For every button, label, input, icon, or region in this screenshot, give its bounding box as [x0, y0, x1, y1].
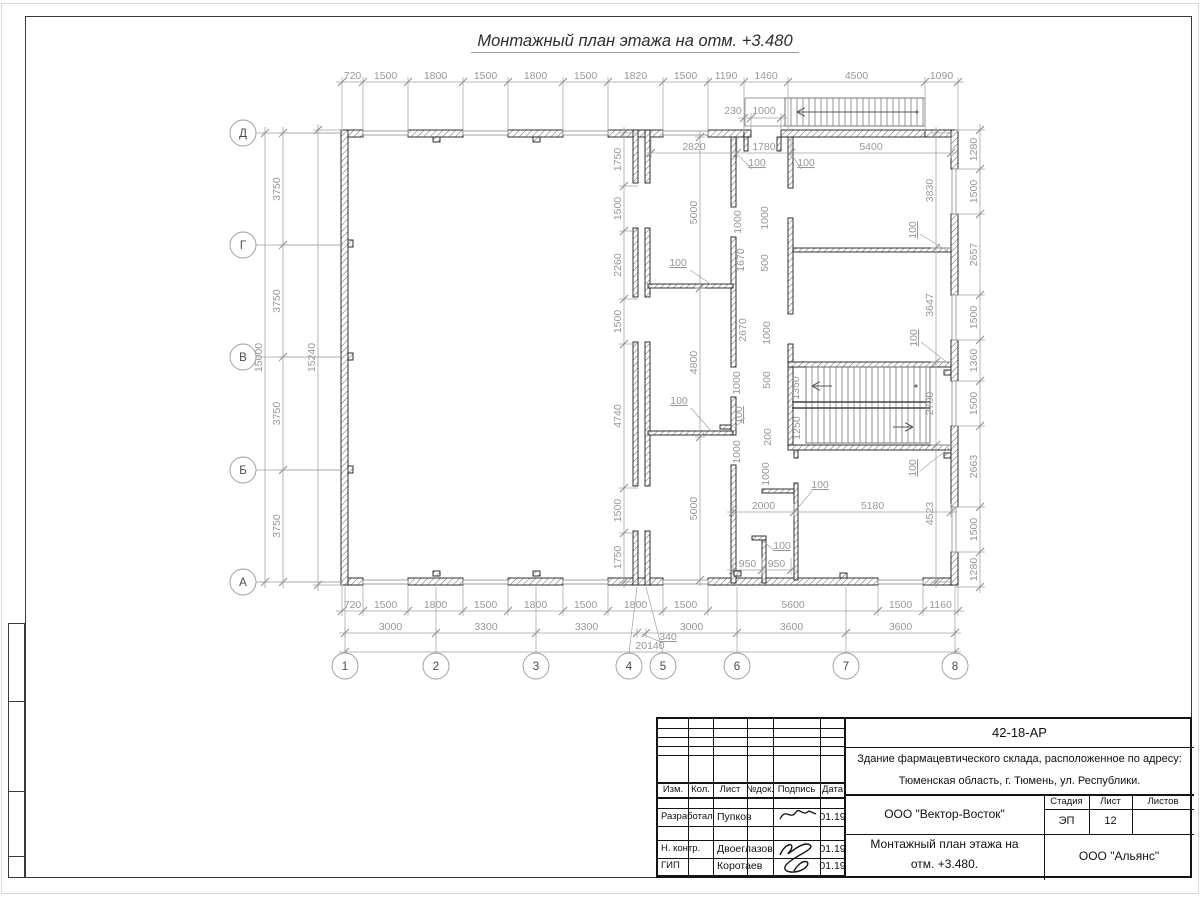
svg-text:3750: 3750	[271, 514, 283, 538]
svg-text:230: 230	[724, 105, 742, 117]
stage-value: ЭП	[1044, 809, 1089, 834]
svg-text:1500: 1500	[674, 599, 698, 611]
svg-text:1500: 1500	[374, 70, 398, 82]
svg-text:1800: 1800	[524, 70, 548, 82]
row-developer-date: 01.19	[820, 808, 845, 826]
svg-text:1500: 1500	[474, 70, 498, 82]
svg-text:3000: 3000	[379, 621, 403, 633]
svg-text:1000: 1000	[761, 321, 773, 345]
svg-text:1500: 1500	[612, 197, 624, 221]
svg-text:100: 100	[670, 395, 688, 407]
row-gip-date: 01.19	[820, 858, 845, 875]
svg-text:3750: 3750	[271, 402, 283, 426]
svg-text:1000: 1000	[731, 440, 743, 464]
col-kol: Кол.	[688, 783, 713, 797]
col-podpis: Подпись	[773, 783, 820, 797]
svg-text:1280: 1280	[968, 138, 980, 162]
row-developer-name: Пупков	[714, 808, 775, 826]
svg-text:Б: Б	[239, 465, 247, 477]
svg-text:1000: 1000	[731, 371, 743, 395]
svg-text:В: В	[239, 352, 247, 364]
svg-text:1000: 1000	[752, 105, 776, 117]
svg-text:3647: 3647	[924, 293, 936, 317]
svg-text:3600: 3600	[889, 621, 913, 633]
svg-text:1500: 1500	[889, 599, 913, 611]
svg-text:1360: 1360	[968, 349, 980, 373]
svg-text:1820: 1820	[624, 70, 648, 82]
svg-text:7: 7	[843, 661, 849, 673]
drawing-sheet: Монтажный план этажа на отм. +3.480 7201…	[0, 0, 1200, 900]
doc-number: 42-18-АР	[845, 719, 1194, 747]
svg-text:3: 3	[533, 661, 539, 673]
svg-text:100: 100	[907, 459, 919, 477]
svg-text:1000: 1000	[759, 206, 771, 230]
sheets-label: Листов	[1132, 795, 1194, 809]
svg-text:500: 500	[761, 371, 773, 389]
object-address-1: Здание фармацевтического склада, располо…	[848, 747, 1191, 771]
svg-text:1500: 1500	[968, 392, 980, 416]
svg-text:Д: Д	[239, 128, 247, 140]
svg-text:5: 5	[660, 661, 666, 673]
svg-text:А: А	[239, 577, 247, 589]
svg-text:8: 8	[952, 661, 958, 673]
svg-text:720: 720	[344, 599, 362, 611]
svg-text:1500: 1500	[474, 599, 498, 611]
svg-text:2000: 2000	[752, 500, 776, 512]
svg-text:100: 100	[908, 329, 920, 347]
svg-text:3750: 3750	[271, 289, 283, 313]
row-developer-role: Разработал	[658, 808, 716, 826]
svg-text:1000: 1000	[760, 462, 772, 486]
col-izm: Изм.	[658, 783, 688, 797]
sheet-label: Лист	[1089, 795, 1132, 809]
svg-text:1500: 1500	[374, 599, 398, 611]
svg-text:1500: 1500	[968, 306, 980, 330]
svg-text:3000: 3000	[680, 621, 704, 633]
customer-org: ООО "Альянс"	[1044, 834, 1194, 880]
svg-text:4740: 4740	[612, 404, 624, 428]
svg-text:1780: 1780	[752, 141, 776, 153]
row-gip-role: ГИП	[658, 858, 716, 875]
svg-text:2657: 2657	[968, 243, 980, 267]
svg-text:5600: 5600	[781, 599, 805, 611]
svg-text:200: 200	[762, 428, 774, 446]
row-ncontrol-name: Двоеглазов	[714, 840, 775, 858]
signature-developer	[776, 805, 820, 825]
svg-text:1500: 1500	[612, 310, 624, 334]
svg-text:5000: 5000	[688, 497, 700, 521]
svg-text:4800: 4800	[688, 351, 700, 375]
col-list: Лист	[713, 783, 747, 797]
svg-text:2260: 2260	[612, 253, 624, 277]
svg-text:1800: 1800	[424, 70, 448, 82]
designer-org: ООО "Вектор-Восток"	[845, 796, 1044, 834]
svg-text:1750: 1750	[612, 148, 624, 172]
stage-label: Стадия	[1044, 795, 1089, 809]
title-block: Изм. Кол. Лист №док. Подпись Дата Разраб…	[656, 717, 1192, 878]
stairs-layer	[785, 98, 930, 443]
svg-text:1500: 1500	[968, 518, 980, 542]
sheet-name-2: отм. +3.480.	[845, 855, 1044, 875]
svg-text:100: 100	[773, 540, 791, 552]
svg-text:3830: 3830	[924, 179, 936, 203]
svg-text:1190: 1190	[715, 70, 738, 82]
svg-text:720: 720	[344, 70, 362, 82]
svg-text:500: 500	[759, 254, 771, 272]
svg-text:3600: 3600	[780, 621, 804, 633]
svg-text:2700: 2700	[924, 392, 936, 416]
svg-text:340: 340	[659, 631, 677, 643]
svg-text:6: 6	[734, 661, 740, 673]
svg-text:1800: 1800	[424, 599, 448, 611]
svg-text:Г: Г	[240, 240, 247, 252]
svg-text:1090: 1090	[930, 70, 954, 82]
svg-text:100: 100	[811, 479, 829, 491]
object-address-2: Тюменская область, г. Тюмень, ул. Респуб…	[848, 769, 1191, 793]
svg-text:950: 950	[739, 558, 757, 570]
svg-text:1500: 1500	[968, 180, 980, 204]
svg-text:2820: 2820	[682, 141, 706, 153]
svg-text:1460: 1460	[754, 70, 778, 82]
walls-layer	[341, 130, 958, 585]
svg-text:2663: 2663	[968, 455, 980, 479]
svg-text:1000: 1000	[732, 210, 744, 234]
svg-text:2670: 2670	[737, 318, 749, 342]
svg-text:1500: 1500	[674, 70, 698, 82]
svg-text:4500: 4500	[845, 70, 869, 82]
svg-text:5000: 5000	[688, 201, 700, 225]
svg-text:1750: 1750	[612, 546, 624, 570]
svg-text:1280: 1280	[968, 558, 980, 582]
svg-text:1800: 1800	[524, 599, 548, 611]
svg-text:3300: 3300	[575, 621, 599, 633]
col-data: Дата	[820, 783, 845, 797]
svg-text:1: 1	[342, 661, 348, 673]
row-ncontrol-date: 01.19	[820, 840, 845, 858]
svg-text:15240: 15240	[306, 343, 318, 372]
svg-text:1670: 1670	[735, 248, 747, 272]
signature-gip	[772, 837, 822, 879]
svg-text:1500: 1500	[574, 70, 598, 82]
svg-text:2: 2	[433, 661, 439, 673]
svg-text:5180: 5180	[861, 500, 885, 512]
svg-text:100: 100	[748, 157, 766, 169]
svg-text:100: 100	[733, 406, 745, 424]
sheet-name-1: Монтажный план этажа на	[845, 835, 1044, 855]
row-ncontrol-role: Н. контр.	[658, 840, 716, 858]
sheet-number: 12	[1089, 809, 1132, 834]
svg-text:1250: 1250	[791, 416, 803, 440]
svg-text:1160: 1160	[929, 599, 952, 611]
svg-text:1500: 1500	[612, 499, 624, 523]
svg-text:950: 950	[768, 558, 786, 570]
svg-text:100: 100	[669, 257, 687, 269]
svg-text:4: 4	[626, 661, 633, 673]
svg-text:3750: 3750	[271, 177, 283, 201]
svg-text:5400: 5400	[859, 141, 883, 153]
col-doc: №док.	[747, 783, 773, 797]
svg-text:1350: 1350	[790, 376, 802, 400]
svg-text:1500: 1500	[574, 599, 598, 611]
row-gip-name: Коротаев	[714, 858, 775, 875]
svg-text:4523: 4523	[924, 502, 936, 526]
svg-text:3300: 3300	[474, 621, 498, 633]
svg-text:100: 100	[907, 221, 919, 239]
